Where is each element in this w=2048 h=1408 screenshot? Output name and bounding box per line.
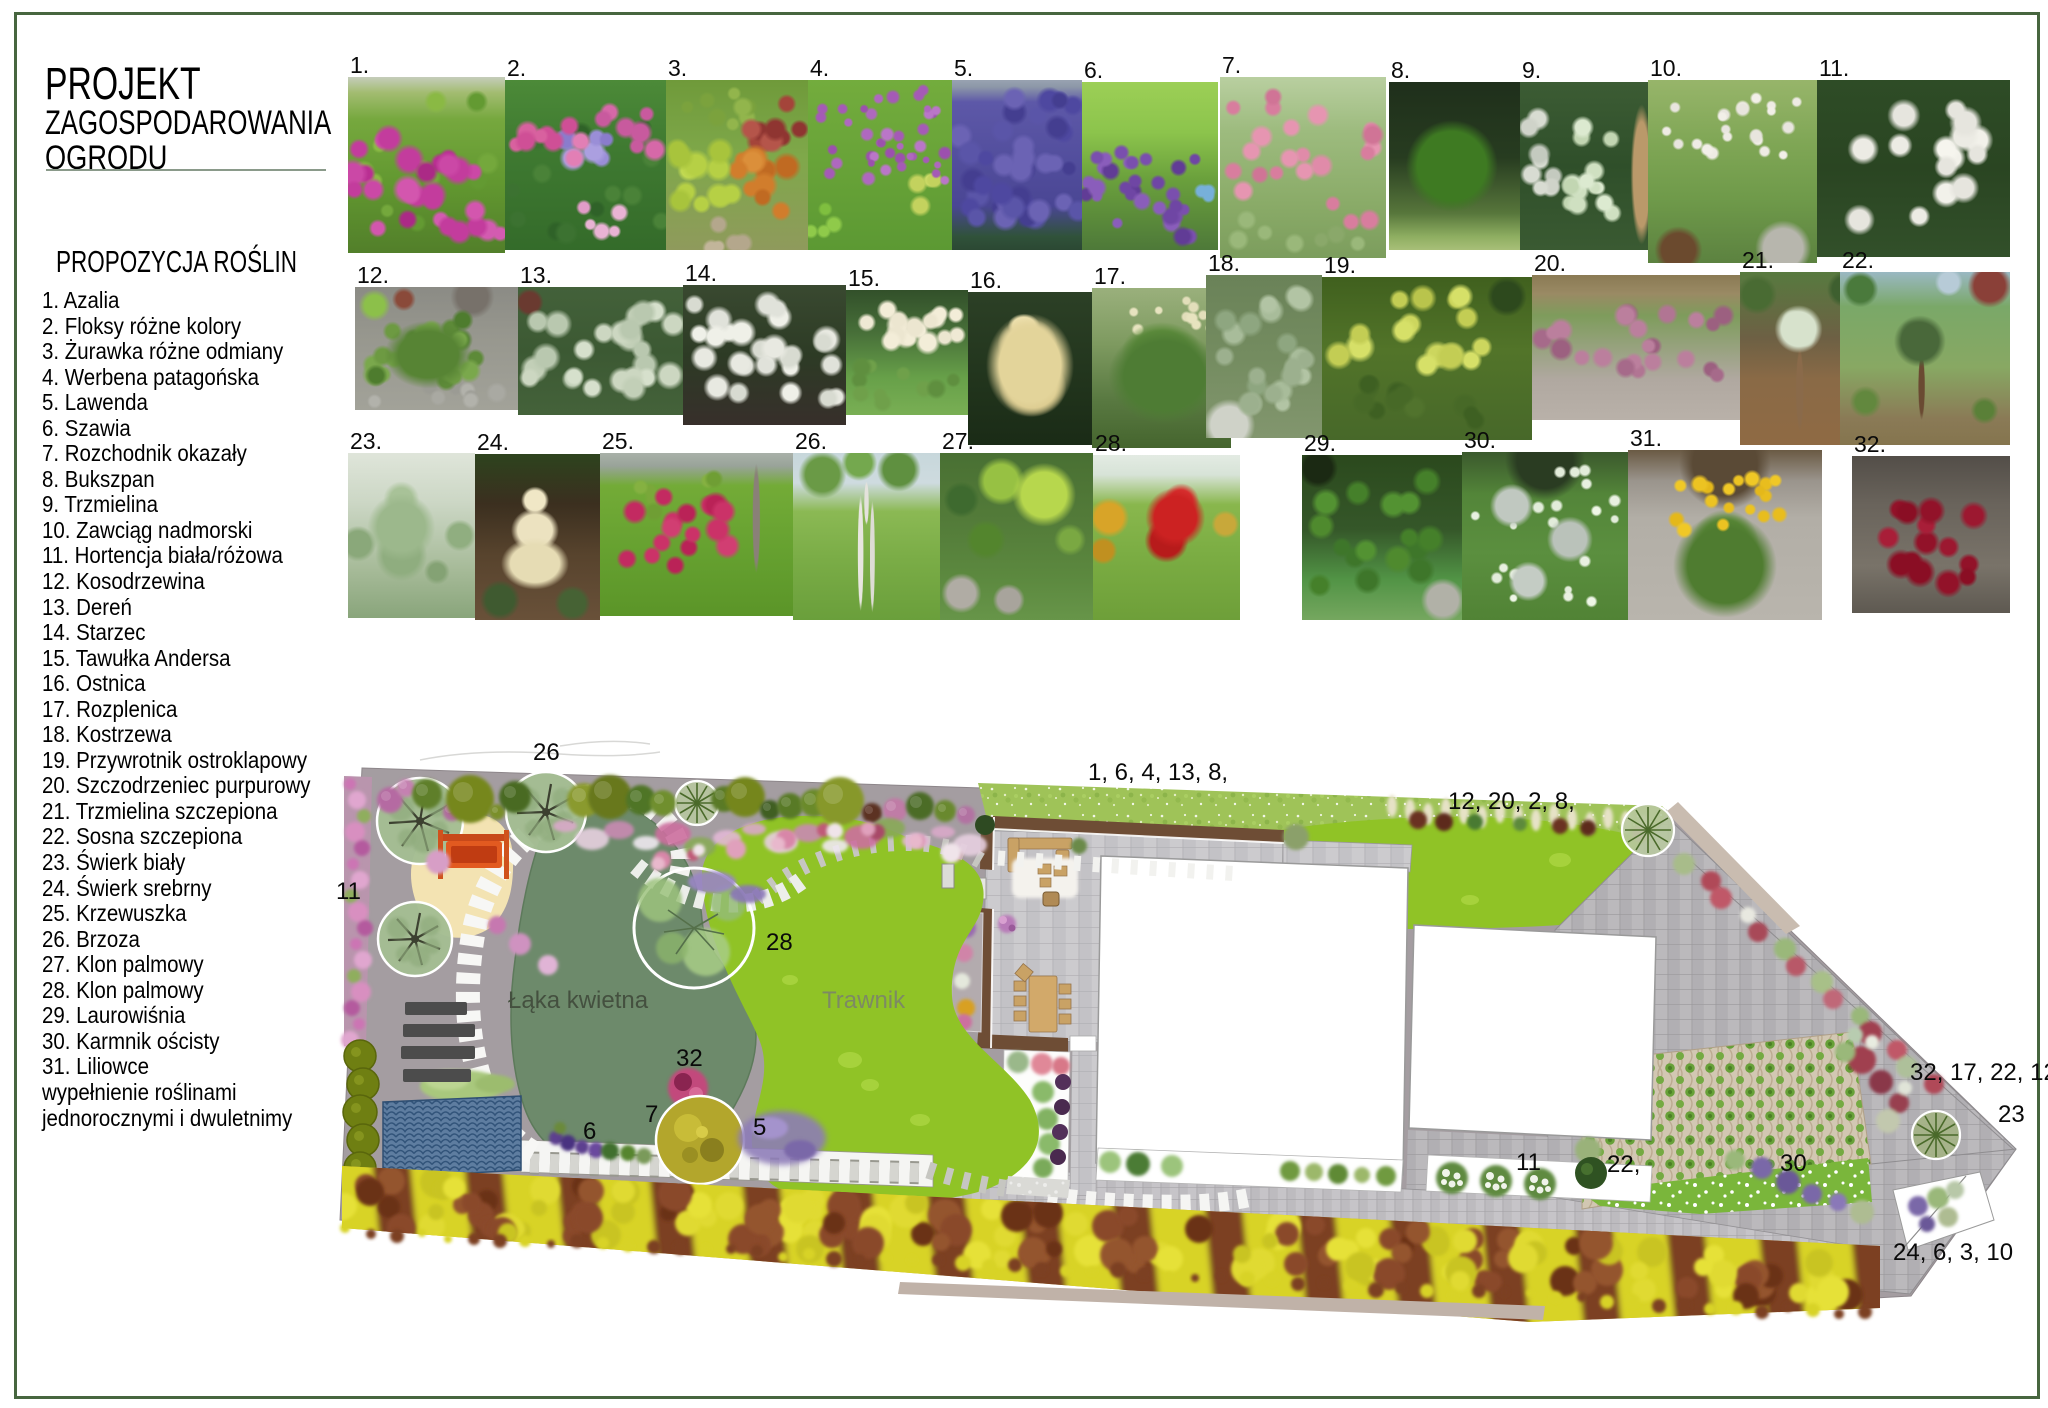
svg-text:32: 32 [676,1045,703,1072]
svg-text:7: 7 [645,1101,658,1128]
svg-text:6: 6 [583,1118,596,1145]
svg-text:12, 20, 2, 8,: 12, 20, 2, 8, [1448,788,1575,815]
svg-text:5: 5 [753,1114,766,1141]
svg-text:24, 6, 3, 10: 24, 6, 3, 10 [1893,1239,2013,1266]
svg-text:Trawnik: Trawnik [822,987,906,1014]
svg-text:26: 26 [533,739,560,766]
svg-text:22,: 22, [1607,1151,1640,1178]
svg-text:28: 28 [766,929,793,956]
svg-text:30: 30 [1780,1150,1807,1177]
svg-text:11: 11 [1516,1149,1541,1176]
svg-text:32, 17, 22, 12: 32, 17, 22, 12 [1910,1059,2048,1086]
svg-text:1, 6, 4, 13, 8,: 1, 6, 4, 13, 8, [1088,759,1228,786]
svg-text:11: 11 [336,878,361,905]
svg-text:23: 23 [1998,1101,2025,1128]
svg-text:Łąka kwietna: Łąka kwietna [508,987,649,1014]
